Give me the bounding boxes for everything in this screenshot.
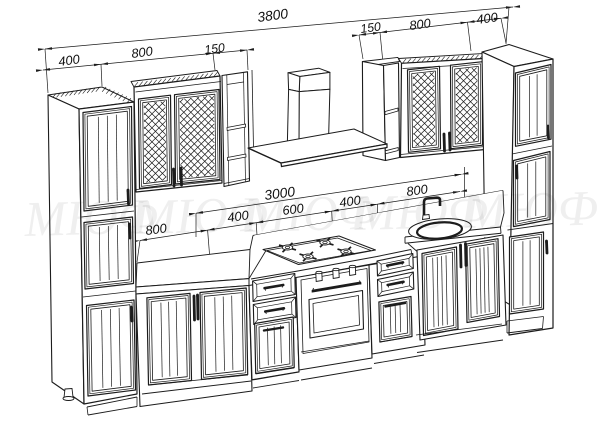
svg-text:800: 800 bbox=[130, 43, 154, 61]
svg-text:400: 400 bbox=[475, 9, 499, 27]
svg-text:МЮФ: МЮФ bbox=[463, 180, 599, 240]
svg-text:150: 150 bbox=[360, 19, 382, 36]
svg-text:800: 800 bbox=[408, 15, 432, 33]
svg-text:150: 150 bbox=[204, 40, 226, 57]
svg-text:400: 400 bbox=[57, 51, 81, 69]
